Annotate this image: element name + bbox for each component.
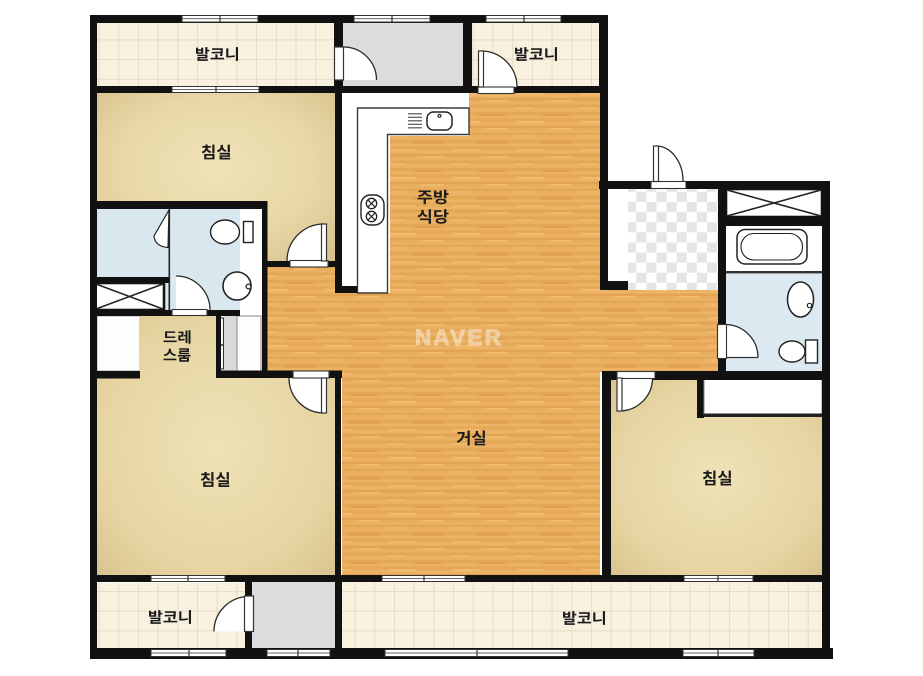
svg-text:NAVER: NAVER <box>415 325 503 350</box>
